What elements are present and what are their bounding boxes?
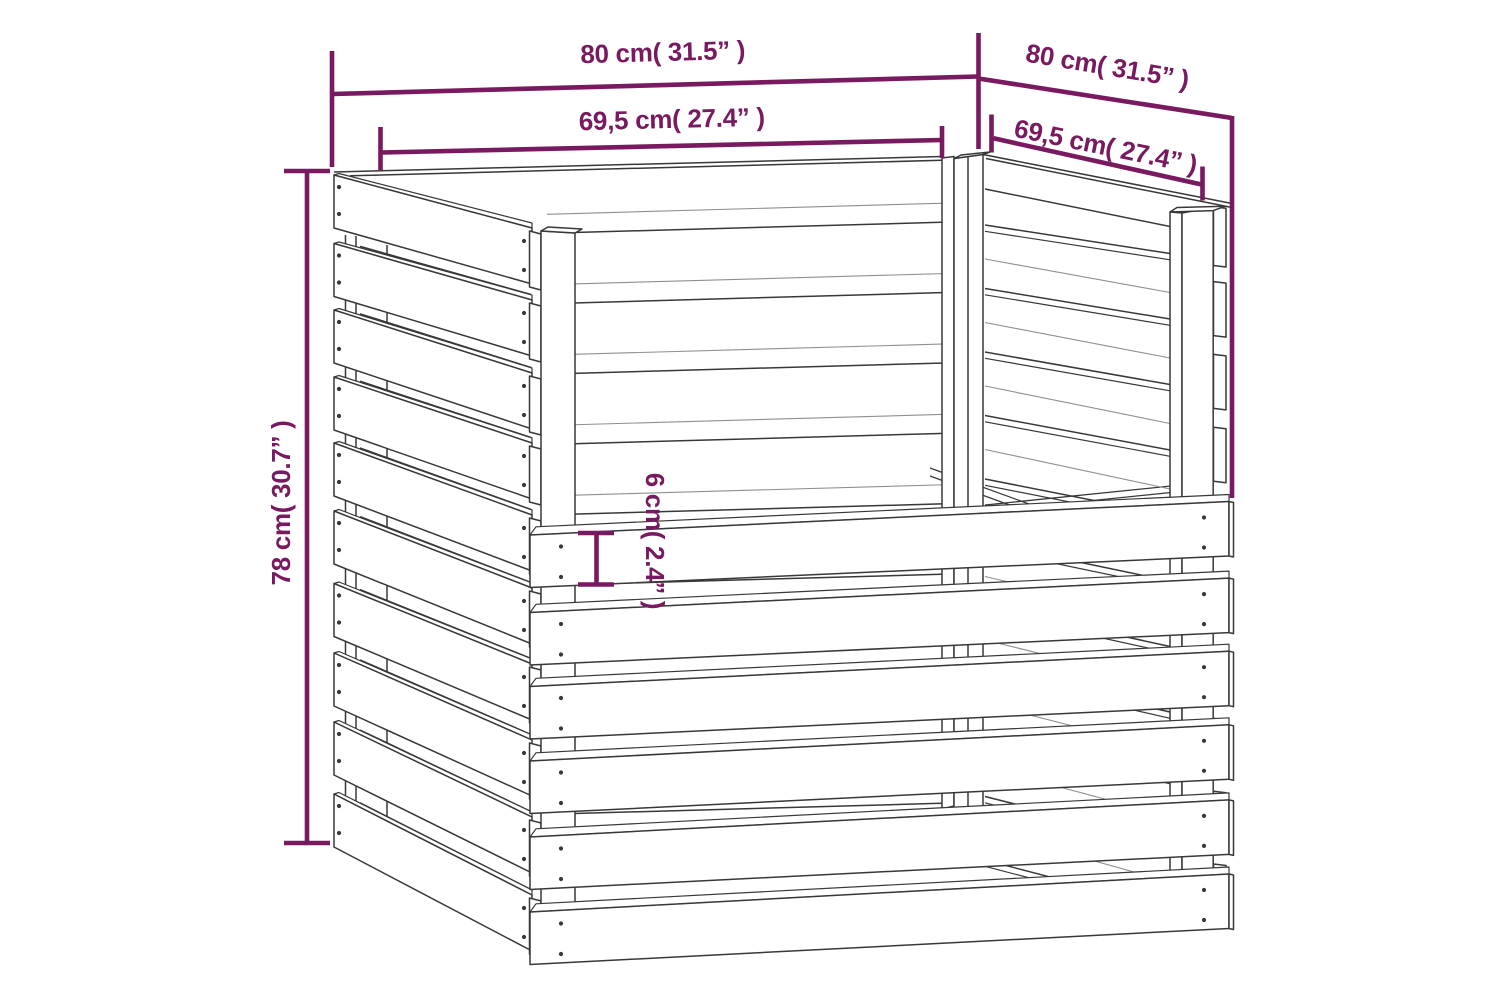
svg-text:78 cm( 30.7” ): 78 cm( 30.7” ) <box>266 421 296 586</box>
svg-text:6 cm( 2.4” ): 6 cm( 2.4” ) <box>640 473 670 610</box>
svg-text:80 cm( 31.5” ): 80 cm( 31.5” ) <box>580 35 746 70</box>
svg-text:69,5 cm( 27.4” ): 69,5 cm( 27.4” ) <box>578 102 765 137</box>
